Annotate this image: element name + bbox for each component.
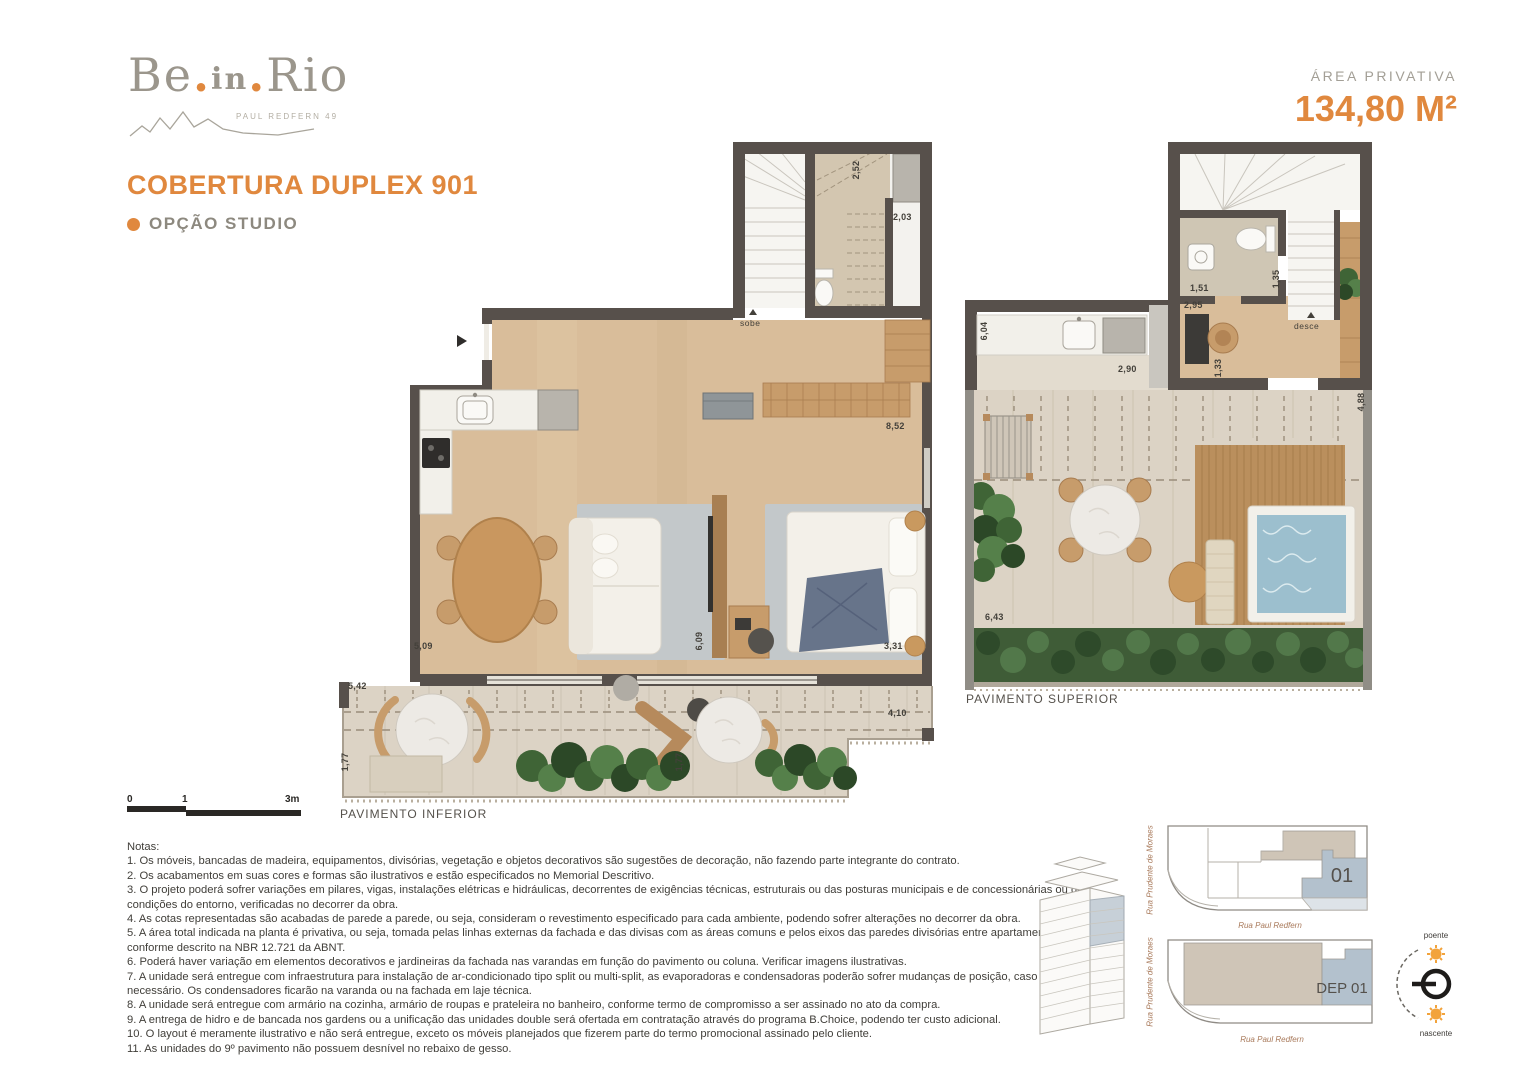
- door-strip: [1149, 305, 1168, 388]
- lounge-towel: [1206, 540, 1234, 624]
- dim-label: 1,77: [674, 753, 684, 772]
- logo-dot: .: [193, 48, 211, 102]
- note-item: 9. A entrega de hidro e de bancada nos g…: [127, 1013, 1089, 1027]
- dim-label: 4,88: [1356, 393, 1366, 412]
- plan-caption-inferior: PAVIMENTO INFERIOR: [340, 807, 487, 821]
- bed: [787, 511, 925, 656]
- note-item: 6. Poderá haver variação em elementos de…: [127, 955, 1089, 969]
- street-label-vertical: Rua Prudente de Moraes: [1146, 937, 1155, 1026]
- dim-label: 1,33: [1213, 359, 1223, 378]
- counter: [977, 315, 1147, 355]
- dim-label: 1,51: [1190, 283, 1209, 293]
- sun-icon: [1427, 1005, 1445, 1023]
- dim-label: 6,09: [694, 632, 704, 651]
- tv: [708, 516, 713, 612]
- note-item: 5. A área total indicada na planta é pri…: [127, 926, 1089, 955]
- note-item: 11. As unidades do 9º pavimento não poss…: [127, 1042, 1089, 1056]
- toilet: [815, 269, 833, 306]
- tv-partition: [712, 495, 727, 658]
- sun-icon: [1427, 945, 1445, 963]
- bath-sink: [1188, 244, 1214, 270]
- street-label-bottom: Rua Paul Redfern: [1240, 1035, 1304, 1044]
- unit-01-label: 01: [1331, 865, 1353, 887]
- logo-part1: Be: [128, 48, 193, 102]
- mountain-skyline-icon: [128, 104, 318, 146]
- building-illustration: [1020, 842, 1140, 1042]
- notes-heading: Notas:: [127, 840, 1089, 854]
- note-item: 3. O projeto poderá sofrer variações em …: [127, 883, 1089, 912]
- stair-label: sobe: [740, 318, 760, 328]
- dim-label: 2,95: [1184, 300, 1203, 310]
- dim-label: 6,04: [979, 322, 989, 341]
- stair-label: desce: [1294, 321, 1319, 331]
- key-plan-dep: DEP 01: [1160, 937, 1375, 1032]
- note-item: 2. Os acabamentos em suas cores e formas…: [127, 869, 1089, 883]
- brand-logo: Be.in.Rio: [128, 52, 349, 98]
- floor-plan-superior: 6,04 2,90 2,95 1,51 1,35 1,33 4,88 6,43 …: [963, 138, 1373, 693]
- stair-direction-icon: [1307, 312, 1315, 318]
- dining-table: [1059, 478, 1151, 562]
- key-plan-floor: 01: [1160, 822, 1375, 922]
- pouf: [1169, 562, 1209, 602]
- brochure-page: Be.in.Rio PAUL REDFERN 49 COBERTURA DUPL…: [0, 0, 1527, 1080]
- note-item: 1. Os móveis, bancadas de madeira, equip…: [127, 854, 1089, 868]
- notes-block: Notas: 1. Os móveis, bancadas de madeira…: [127, 840, 1089, 1056]
- entry-arrow-icon: [457, 335, 467, 347]
- desk: [729, 606, 774, 658]
- side-table: [613, 675, 639, 701]
- scale-tick: 1: [182, 794, 188, 805]
- dim-label: 8,52: [886, 421, 905, 431]
- scale-tick: 3m: [285, 794, 299, 805]
- floor-plan-inferior: 5,42 1,77 5,09 6,09 3,31 4,10 1,77 8,52 …: [337, 138, 937, 803]
- scale-bar: 0 1 3m: [127, 794, 307, 820]
- compass-nascente-label: nascente: [1420, 1029, 1453, 1038]
- note-item: 7. A unidade será entregue com infraestr…: [127, 970, 1089, 999]
- appliance: [893, 154, 923, 202]
- logo-part2: in: [211, 62, 248, 97]
- logo-part3: Rio: [266, 48, 349, 102]
- wood-shelf: [1340, 222, 1362, 378]
- scale-segment: [127, 806, 186, 812]
- dim-label: 6,43: [985, 612, 1004, 622]
- sideboard: [703, 393, 753, 419]
- private-area-value: 134,80 M²: [1295, 88, 1457, 130]
- dim-label: 3,31: [884, 641, 903, 651]
- floor-plan-inferior-drawing: [337, 138, 937, 803]
- compass: poente nascente: [1390, 928, 1482, 1040]
- dim-label: 2,52: [851, 161, 861, 180]
- dim-label: 5,42: [348, 681, 367, 691]
- dim-label: 1,77: [340, 753, 350, 772]
- dim-label: 1,35: [1271, 270, 1281, 289]
- trellis: [983, 414, 1033, 480]
- note-item: 4. As cotas representadas são acabadas d…: [127, 912, 1089, 926]
- hedge: [974, 628, 1365, 682]
- entry-door: [484, 324, 489, 360]
- orientation-icon: [1412, 971, 1449, 997]
- compass-poente-label: poente: [1424, 931, 1449, 940]
- private-area-label: ÁREA PRIVATIVA: [1311, 68, 1457, 84]
- dim-label: 2,90: [1118, 364, 1137, 374]
- floor-plan-superior-drawing: [963, 138, 1373, 693]
- option-label: OPÇÃO STUDIO: [149, 214, 298, 234]
- plan-caption-superior: PAVIMENTO SUPERIOR: [966, 692, 1119, 706]
- sofa: [569, 518, 661, 654]
- toilet: [1236, 226, 1275, 252]
- dim-label: 5,09: [414, 641, 433, 651]
- scale-segment: [186, 810, 301, 816]
- dim-label: 2,03: [893, 212, 912, 222]
- bullet-dot-icon: [127, 218, 140, 231]
- note-item: 10. O layout é meramente ilustrativo e n…: [127, 1027, 1089, 1041]
- street-label-vertical: Rua Prudente de Moraes: [1146, 825, 1155, 914]
- note-item: 8. A unidade será entregue com armário n…: [127, 998, 1089, 1012]
- terrace-mat: [370, 756, 442, 792]
- stair-direction-icon: [749, 309, 757, 315]
- pool: [1248, 506, 1355, 622]
- logo-dot: .: [248, 48, 266, 102]
- unit-dep-label: DEP 01: [1316, 980, 1367, 997]
- scale-tick: 0: [127, 794, 133, 805]
- street-label-bottom: Rua Paul Redfern: [1238, 921, 1302, 930]
- dim-label: 4,10: [888, 708, 907, 718]
- option-row: OPÇÃO STUDIO: [127, 214, 298, 234]
